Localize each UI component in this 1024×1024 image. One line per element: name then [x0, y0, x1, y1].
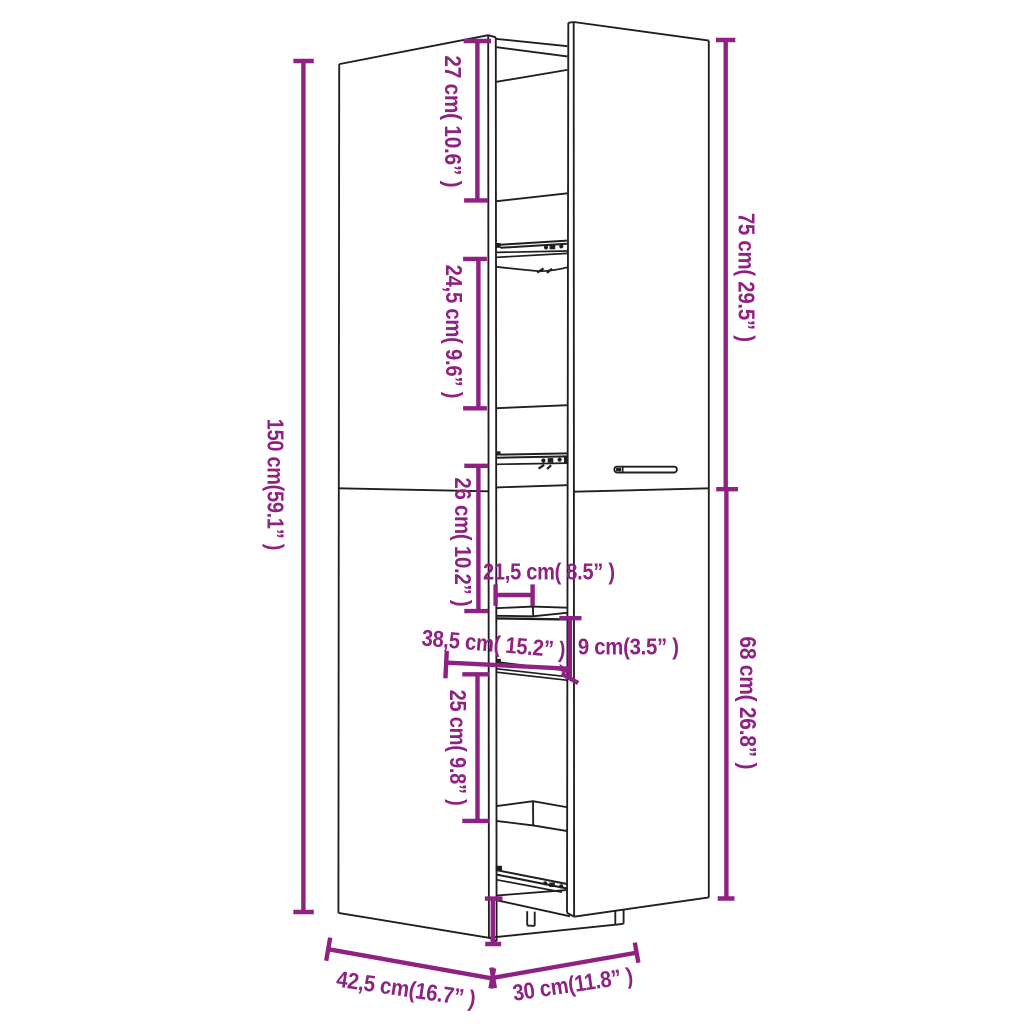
svg-text:9 cm(3.5” ): 9 cm(3.5” ) — [578, 634, 679, 660]
svg-text:25 cm( 9.8” ): 25 cm( 9.8” ) — [445, 690, 471, 806]
svg-text:75 cm( 29.5” ): 75 cm( 29.5” ) — [734, 213, 760, 342]
svg-text:21,5 cm( 8.5” ): 21,5 cm( 8.5” ) — [483, 558, 615, 584]
svg-text:27 cm( 10.6” ): 27 cm( 10.6” ) — [440, 55, 466, 187]
svg-text:24,5 cm( 9.6” ): 24,5 cm( 9.6” ) — [441, 265, 467, 399]
svg-text:150 cm(59.1” ): 150 cm(59.1” ) — [263, 419, 289, 550]
svg-text:68 cm( 26.8” ): 68 cm( 26.8” ) — [735, 636, 761, 769]
svg-text:26 cm( 10.2” ): 26 cm( 10.2” ) — [450, 477, 476, 606]
